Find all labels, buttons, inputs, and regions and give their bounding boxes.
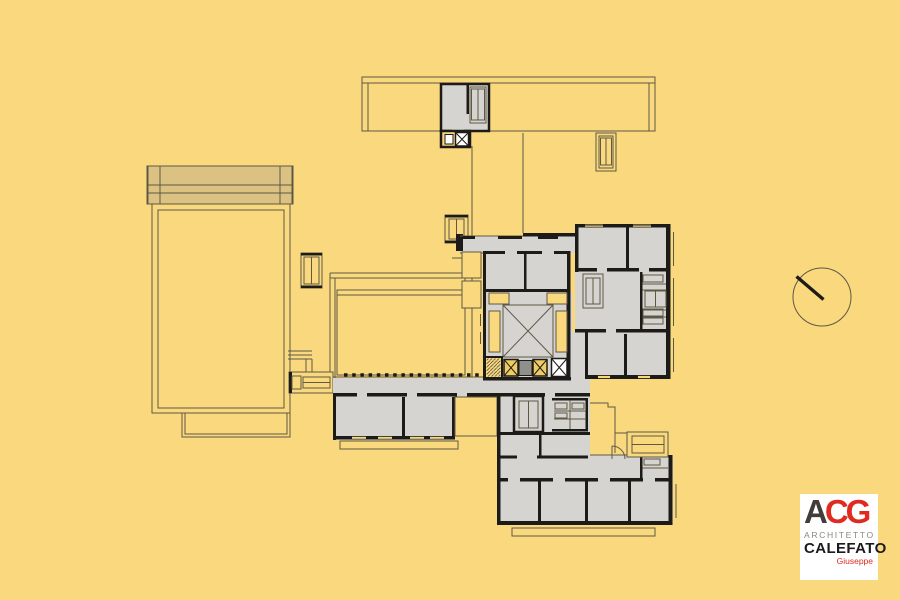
wall	[585, 481, 588, 523]
elevator-icon	[504, 360, 518, 377]
wall	[333, 393, 357, 397]
corridor-endcap	[456, 234, 463, 251]
window-gap	[638, 376, 650, 378]
north-building-outline	[362, 77, 655, 131]
west-link-lines	[288, 351, 312, 372]
window-gap	[598, 376, 610, 378]
light-shaft	[489, 293, 509, 304]
wall	[497, 521, 672, 525]
logo-profession: ARCHITETTO	[804, 530, 875, 540]
elevator-icon	[456, 133, 469, 147]
wall	[640, 272, 643, 330]
south-annex-outline	[182, 413, 290, 437]
terrace-hatch-band	[512, 528, 655, 536]
architect-logo: ACG ARCHITETTO CALEFATO Giuseppe	[800, 494, 878, 580]
wall	[552, 429, 588, 432]
wall	[483, 251, 486, 292]
light-shaft	[556, 311, 567, 352]
window-gap	[378, 437, 392, 439]
wall	[666, 224, 671, 272]
north-arrow-icon	[793, 268, 851, 326]
door-gap	[639, 268, 649, 272]
slab-south-east	[590, 455, 673, 525]
slab-southwest	[333, 395, 452, 440]
wall	[524, 254, 527, 292]
courtyard	[288, 253, 480, 393]
wall	[567, 251, 571, 292]
shaft-box	[445, 135, 453, 145]
door-gap	[545, 393, 555, 397]
terrace-hatch-band	[340, 441, 458, 449]
wall	[497, 432, 590, 435]
logo-surname: CALEFATO	[804, 540, 875, 557]
window-gap	[410, 437, 424, 439]
stair-treads	[487, 359, 501, 377]
wall	[483, 289, 571, 292]
courtyard-inner	[337, 290, 465, 375]
stair-icon	[485, 357, 502, 378]
elevator-annex	[441, 131, 470, 147]
wall	[575, 329, 670, 333]
wall	[640, 455, 643, 481]
wall	[537, 456, 588, 459]
compass-needle	[797, 277, 824, 300]
wall	[586, 398, 589, 431]
wall	[497, 393, 501, 525]
wall	[367, 393, 407, 397]
stair-cap	[301, 253, 322, 256]
core-walls	[441, 84, 489, 131]
slab-northeast	[575, 224, 670, 272]
wall	[539, 432, 542, 458]
open-room	[455, 397, 497, 436]
wall	[575, 224, 579, 272]
tribune-band	[147, 166, 293, 204]
stair-core	[441, 84, 489, 132]
wall	[610, 478, 643, 482]
wall	[520, 478, 553, 482]
elevator-icon	[552, 359, 568, 377]
west-building	[147, 166, 293, 437]
band-upper	[148, 166, 292, 185]
stair-icon	[627, 432, 668, 457]
wall	[417, 393, 457, 397]
slab-east-lower	[585, 332, 670, 379]
wall	[523, 233, 575, 237]
wall	[565, 478, 598, 482]
escalator-icon	[289, 372, 333, 393]
wall	[626, 226, 629, 270]
wall	[517, 251, 542, 254]
logo-letters-cg: CG	[825, 493, 869, 530]
wall	[497, 478, 508, 482]
wall	[669, 455, 673, 525]
stair-icon	[583, 274, 603, 308]
west-balcony	[462, 281, 481, 308]
wall	[628, 481, 631, 523]
wall	[333, 395, 336, 440]
elevator-icon	[533, 360, 547, 377]
east-facade-windows	[674, 232, 677, 518]
wall	[585, 375, 670, 379]
wall	[467, 393, 497, 397]
window-gap	[352, 437, 366, 439]
stair-cap	[445, 215, 468, 218]
stair-cap	[301, 286, 322, 289]
stair-icon	[596, 133, 616, 171]
core-partition	[467, 84, 470, 114]
floor-plan	[0, 0, 900, 600]
logo-acronym: ACG	[804, 497, 875, 527]
logo-firstname: Giuseppe	[804, 556, 875, 566]
stair-icon	[301, 253, 322, 288]
door-gap	[606, 329, 616, 333]
wall	[575, 268, 670, 272]
wall	[666, 332, 671, 379]
wall	[585, 332, 588, 379]
light-shaft	[547, 293, 567, 304]
courtyard-outer-lines	[330, 258, 472, 378]
grate	[519, 361, 532, 376]
wall	[463, 236, 475, 239]
hall-outline	[152, 204, 290, 413]
window-gap	[430, 437, 444, 439]
light-shaft	[489, 311, 500, 352]
logo-letter-a: A	[804, 493, 825, 530]
wall	[402, 397, 405, 436]
wall	[483, 251, 505, 254]
wall	[498, 236, 522, 239]
door-gap	[597, 268, 607, 272]
west-balcony	[462, 252, 481, 278]
wall	[624, 334, 627, 377]
wall	[538, 481, 541, 523]
wall	[497, 456, 517, 459]
band-lower	[148, 185, 292, 204]
main-building	[333, 224, 676, 536]
wall	[666, 272, 671, 332]
